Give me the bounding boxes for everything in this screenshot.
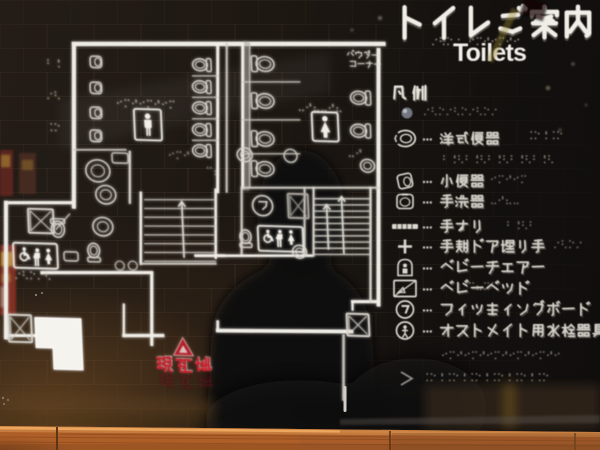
- svg-text:Toilets: Toilets: [453, 39, 526, 67]
